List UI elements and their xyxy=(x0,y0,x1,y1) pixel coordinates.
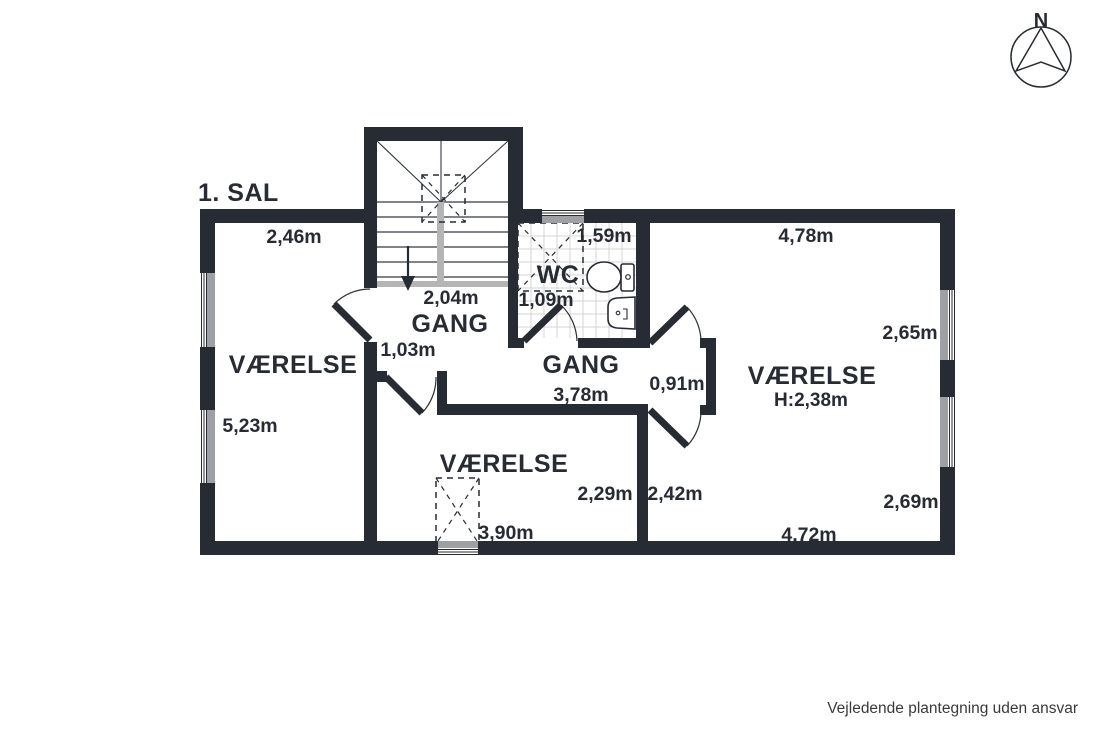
hall-upper-label: GANG xyxy=(412,310,489,338)
window-left-lower xyxy=(202,410,216,483)
floorplan-canvas: N 1. SAL VÆRELSE 2,46m 5,23m GANG 2,04m … xyxy=(0,0,1100,733)
window-left-upper xyxy=(202,273,216,347)
stair-bump-left-wall xyxy=(364,127,377,288)
room-right-dim-right-upper: 2,65m xyxy=(882,322,937,344)
hall-upper-dim-door: 1,03m xyxy=(380,339,435,361)
wall-bottom-room-top xyxy=(437,404,648,415)
room-bottom-dim-right: 2,29m xyxy=(577,483,632,505)
room-right-dim-right-lower: 2,69m xyxy=(883,491,938,513)
compass-north-label: N xyxy=(1034,10,1048,32)
window-right-upper xyxy=(940,290,955,360)
room-bottom-label: VÆRELSE xyxy=(440,450,569,478)
wc-fixtures xyxy=(587,262,635,329)
compass-north-arrow xyxy=(1016,28,1065,71)
window-bottom xyxy=(438,541,478,555)
room-right-label: VÆRELSE xyxy=(748,362,877,390)
stair-bump-top-wall xyxy=(364,127,523,141)
stair-bump-right-wall xyxy=(508,127,523,223)
hall-lower-dim-door: 0,91m xyxy=(649,373,704,395)
floorplan-drawing: N 1. SAL VÆRELSE 2,46m 5,23m GANG 2,04m … xyxy=(0,0,1100,733)
room-left-dim-top: 2,46m xyxy=(266,226,321,248)
wc-label: WC xyxy=(537,261,580,289)
wall-vestibule-bracket xyxy=(706,338,716,415)
hall-lower-dim-bottom: 3,78m xyxy=(553,384,608,406)
stair-winders xyxy=(377,141,508,202)
hall-upper-dim-top: 2,04m xyxy=(423,287,478,309)
room-left-dim-left: 5,23m xyxy=(222,415,277,437)
wall-wc-right xyxy=(636,223,650,348)
room-left-label: VÆRELSE xyxy=(229,351,358,379)
door-right-room-lower xyxy=(650,410,701,446)
bottom-room-skylight-dashed xyxy=(436,478,479,544)
window-top xyxy=(542,211,584,224)
door-left-room xyxy=(334,289,370,340)
staircase xyxy=(377,141,508,291)
hall-lower-label: GANG xyxy=(543,351,620,379)
wall-left-room-divider xyxy=(364,342,377,546)
toilet-tank xyxy=(621,264,634,291)
room-bottom-dim-bottom: 3,90m xyxy=(478,522,533,544)
compass-circle xyxy=(1011,27,1071,87)
door-bottom-room xyxy=(386,377,436,413)
room-right-dim-bottom: 4,72m xyxy=(781,524,836,546)
wc-dim-top: 1,59m xyxy=(576,225,631,247)
sink xyxy=(608,297,635,329)
floor-title: 1. SAL xyxy=(198,179,279,207)
stair-rail-vertical xyxy=(437,202,444,287)
wall-wc-left xyxy=(508,223,518,348)
wall-bottom-right-divider xyxy=(637,404,648,546)
wc-dim-left: 1,09m xyxy=(518,289,573,311)
room-right-dim-left: 2,42m xyxy=(647,483,702,505)
room-right-ceiling: H:2,38m xyxy=(774,390,848,411)
disclaimer: Vejledende plantegning uden ansvar xyxy=(827,700,1078,717)
window-right-lower xyxy=(940,397,955,467)
room-right-dim-top: 4,78m xyxy=(778,225,833,247)
door-right-room-upper xyxy=(650,307,701,343)
compass: N xyxy=(1011,10,1071,87)
toilet-bowl xyxy=(587,262,621,292)
